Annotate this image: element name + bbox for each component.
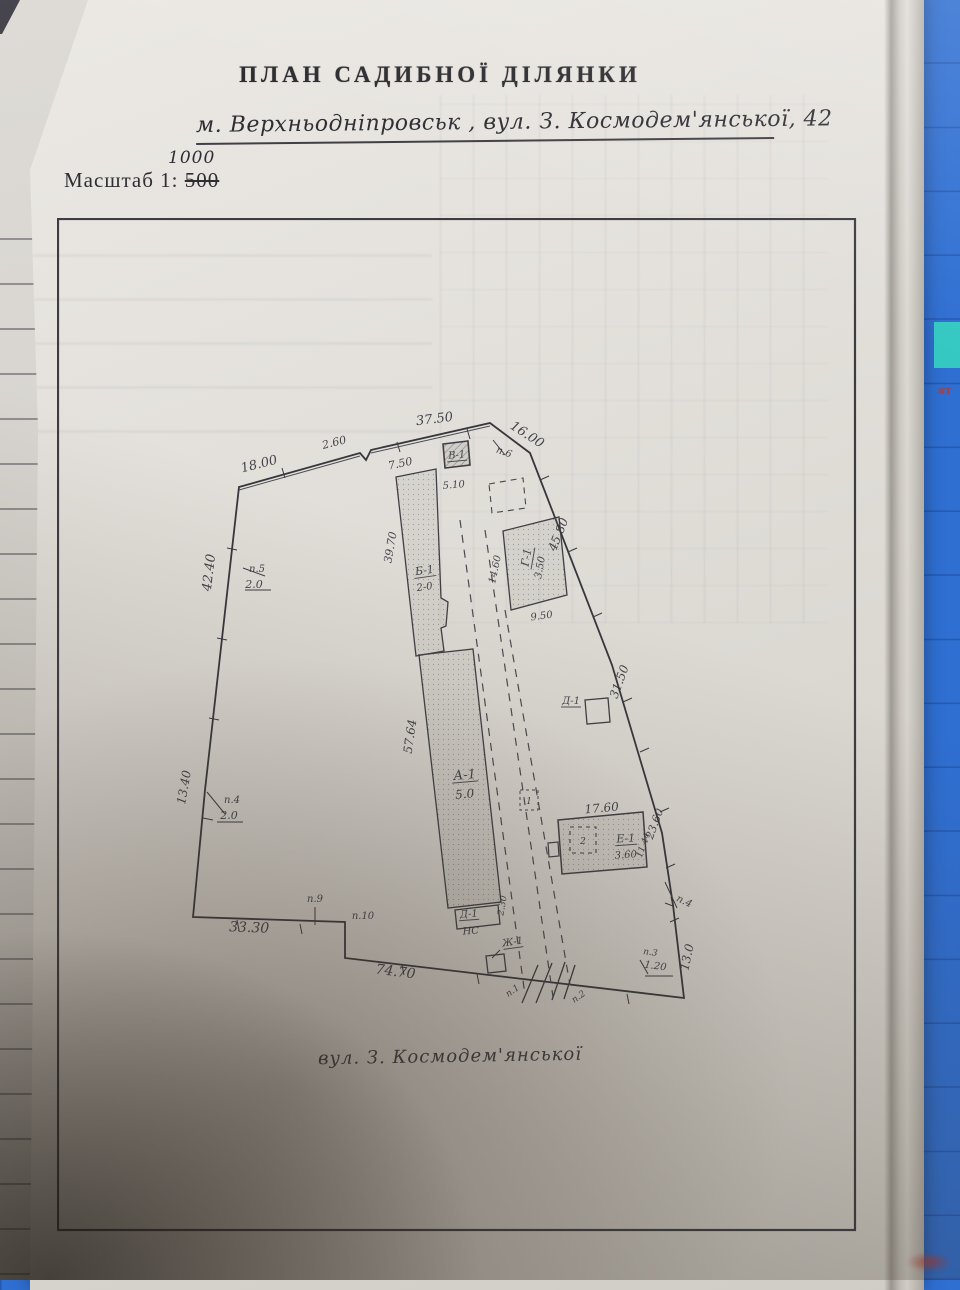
red-stamp-smudge bbox=[906, 1252, 952, 1272]
point-marker: п.2 bbox=[570, 989, 588, 1006]
point-marker: п.10 bbox=[352, 911, 375, 922]
dimension-label: 57.64 bbox=[401, 718, 420, 754]
dimension-label: 37.50 bbox=[415, 410, 454, 429]
building-value: НС bbox=[461, 925, 479, 937]
scale-block: Масштаб 1: 500 1000 bbox=[64, 168, 219, 193]
dimension-label: 2.0 bbox=[219, 809, 238, 822]
dimension-label: 2.60 bbox=[320, 433, 348, 452]
dimension-label: 5.0 bbox=[455, 786, 476, 802]
dimension-label: 16.00 bbox=[507, 419, 546, 452]
dimension-label: 13.40 bbox=[174, 769, 194, 806]
building-label: Д-1 bbox=[459, 908, 479, 920]
point-marker: п.5 bbox=[249, 564, 265, 575]
point-marker: п.3 bbox=[642, 947, 658, 959]
building-label: Е-1 bbox=[615, 831, 636, 845]
dimension-label: 9.50 bbox=[530, 609, 554, 623]
dimension-label: 31.50 bbox=[607, 663, 632, 700]
structure-number: 2 bbox=[579, 837, 586, 847]
scale-old-value-struck: 500 bbox=[185, 168, 220, 192]
handwritten-address-line: м. Верхньодніпровськ , вул. З. Космодем'… bbox=[196, 107, 774, 145]
point-marker: п.6 bbox=[494, 445, 513, 461]
point-marker: п.9 bbox=[307, 894, 324, 905]
building-label: Д-1 bbox=[561, 696, 580, 707]
building-e1-notch bbox=[548, 842, 559, 857]
dimension-label: 13.0 bbox=[677, 942, 696, 971]
scale-new-value-handwritten: 1000 bbox=[168, 148, 215, 168]
dimension-label: 18.00 bbox=[239, 453, 279, 477]
dimension-label: 1.20 bbox=[644, 960, 668, 974]
dimension-label: 7.50 bbox=[387, 455, 414, 473]
dimension-label: 42.40 bbox=[200, 553, 220, 593]
dimension-label: 33.30 bbox=[229, 919, 270, 936]
point-marker: п.1 bbox=[504, 983, 522, 999]
dimension-label: 17.60 bbox=[584, 800, 620, 817]
dashed-structure-outline bbox=[489, 478, 526, 513]
dimension-label: 39.70 bbox=[381, 531, 399, 564]
dimension-label: 74.70 bbox=[375, 962, 417, 983]
teal-object-at-edge bbox=[934, 322, 960, 368]
adjacent-sheet-red-text: ят bbox=[938, 382, 951, 398]
small-square-structure bbox=[585, 698, 610, 724]
structure-number: 1 bbox=[526, 797, 532, 807]
dimension-label: 3.60 bbox=[614, 849, 638, 862]
building-label: В-1 bbox=[447, 449, 466, 462]
page-title: ПЛАН САДИБНОЇ ДІЛЯНКИ bbox=[120, 62, 760, 88]
point-marker: п.4 bbox=[224, 795, 240, 806]
dimension-label: 14.60 bbox=[487, 554, 504, 585]
sheet-right-edge-fold bbox=[884, 0, 924, 1290]
dimension-label: 2.0 bbox=[244, 578, 263, 591]
photo-of-site-plan-document: { "surface": { "mat_color": "#2f6fd2", "… bbox=[0, 0, 960, 1280]
structure-zh1-shape bbox=[486, 954, 506, 973]
plan-svg: 18.002.6037.5016.00п.67.50В-15.1042.40п.… bbox=[57, 218, 857, 1232]
building-b1-shape bbox=[396, 469, 448, 656]
scale-label: Масштаб 1: bbox=[64, 168, 179, 192]
dimension-label: 5.10 bbox=[442, 479, 466, 492]
